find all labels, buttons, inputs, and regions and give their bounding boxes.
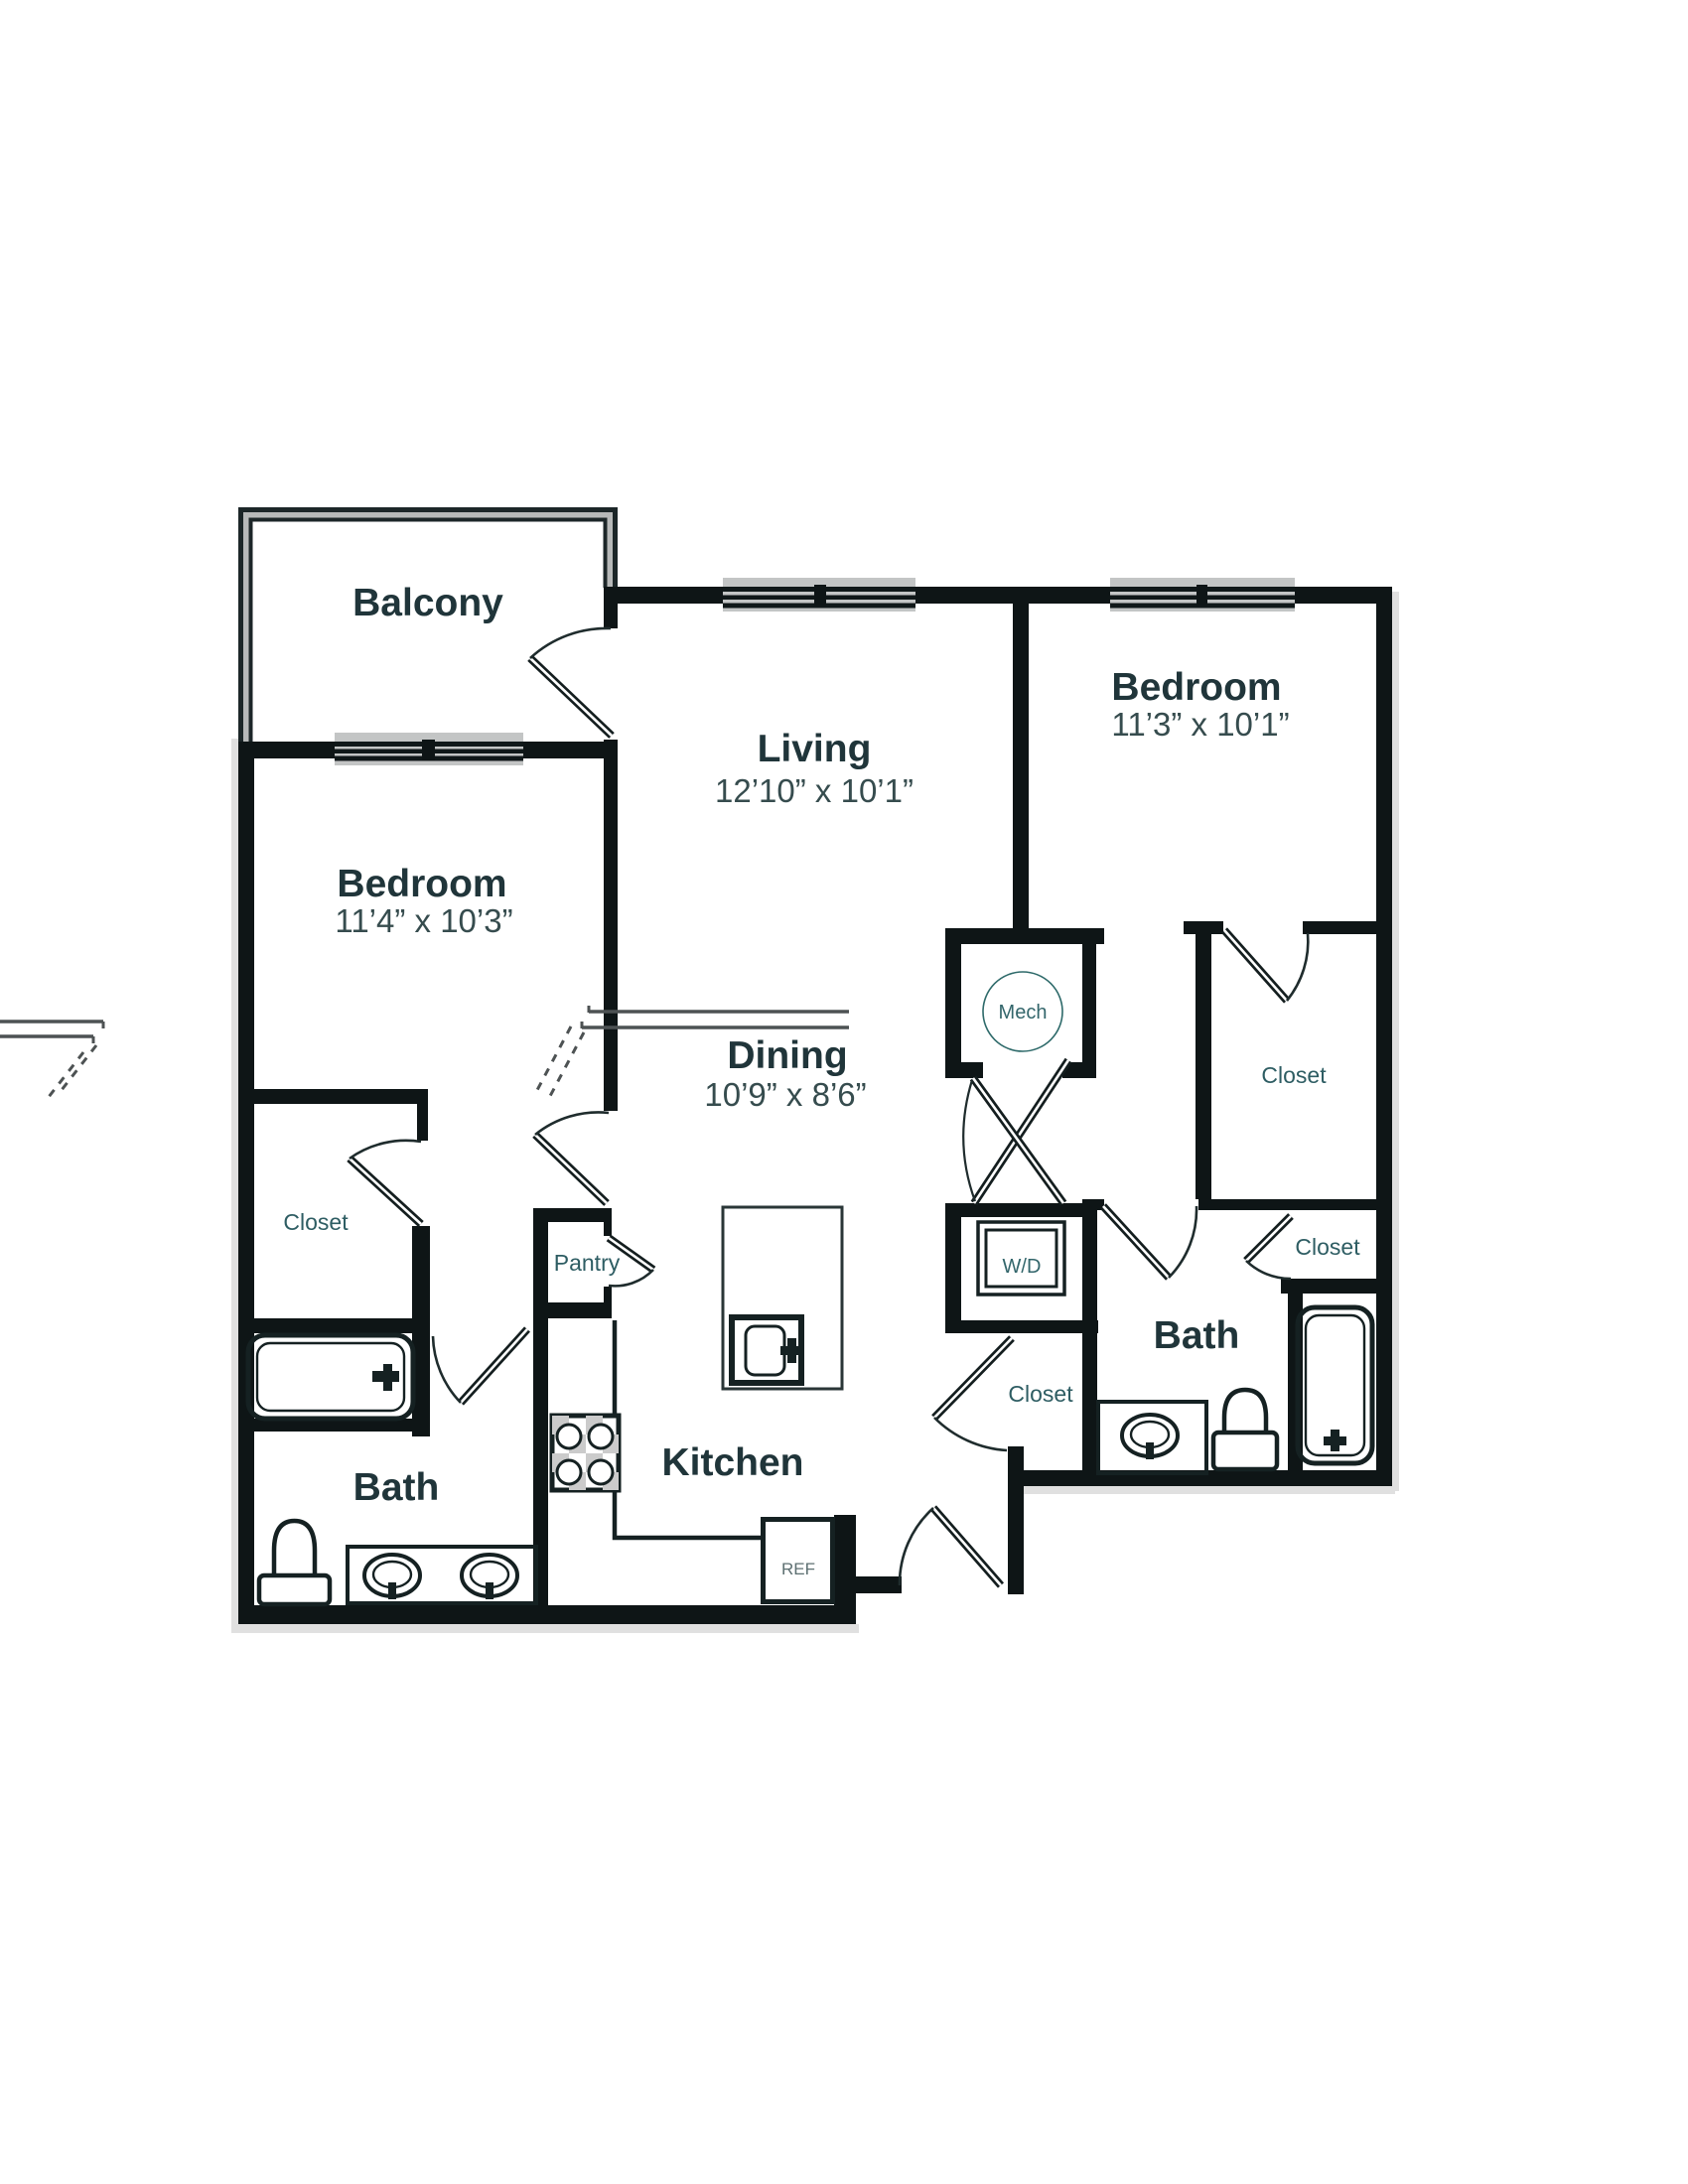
svg-text:Bath: Bath <box>1154 1314 1240 1357</box>
svg-text:10’9” x 8’6”: 10’9” x 8’6” <box>704 1076 866 1113</box>
svg-text:Balcony: Balcony <box>352 582 503 624</box>
svg-text:Bath: Bath <box>353 1466 440 1509</box>
svg-text:REF: REF <box>781 1560 815 1578</box>
svg-text:12’10” x 10’1”: 12’10” x 10’1” <box>715 772 914 809</box>
svg-text:Closet: Closet <box>1261 1062 1327 1088</box>
svg-text:Closet: Closet <box>1295 1234 1360 1260</box>
svg-text:Pantry: Pantry <box>554 1250 621 1276</box>
svg-text:Closet: Closet <box>283 1209 349 1235</box>
svg-text:Kitchen: Kitchen <box>661 1441 803 1484</box>
svg-text:11’4” x 10’3”: 11’4” x 10’3” <box>335 902 512 939</box>
svg-text:Bedroom: Bedroom <box>1111 666 1281 709</box>
svg-text:Closet: Closet <box>1008 1381 1073 1407</box>
svg-text:Mech: Mech <box>999 1002 1048 1024</box>
svg-text:Dining: Dining <box>727 1034 847 1077</box>
svg-text:W/D: W/D <box>1003 1256 1042 1278</box>
svg-text:Bedroom: Bedroom <box>337 863 506 905</box>
svg-text:Living: Living <box>758 728 872 770</box>
svg-text:11’3” x 10’1”: 11’3” x 10’1” <box>1111 706 1289 743</box>
